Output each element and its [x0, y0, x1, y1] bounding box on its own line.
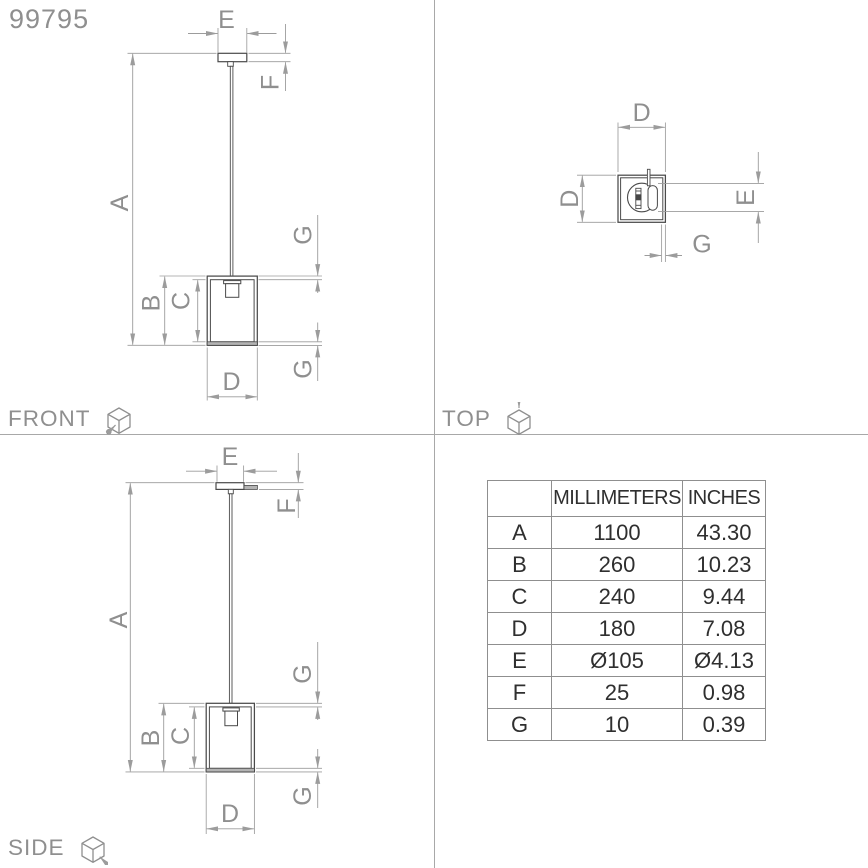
front-view-label-text: FRONT	[8, 406, 91, 432]
dim-inches: 0.98	[683, 677, 766, 709]
side-dim-label-g-top: G	[289, 664, 317, 683]
dim-mm: 180	[552, 613, 683, 645]
side-view-cube-icon	[78, 831, 108, 865]
side-dim-label-e: E	[222, 443, 239, 471]
dim-key: D	[488, 613, 552, 645]
side-dim-g-top: G	[256, 642, 322, 720]
dim-key: B	[488, 549, 552, 581]
front-dim-label-f: F	[257, 75, 285, 90]
top-dim-label-d-top: D	[633, 99, 651, 127]
side-dim-a: A	[105, 483, 215, 772]
dim-key: G	[488, 709, 552, 741]
top-dim-d-left: D	[556, 175, 616, 222]
dim-mm: 240	[552, 581, 683, 613]
table-row: B 260 10.23	[488, 549, 766, 581]
table-row: F 25 0.98	[488, 677, 766, 709]
top-dim-label-d-left: D	[556, 190, 584, 208]
top-dim-label-g: G	[692, 231, 711, 259]
dimensions-table: MILLIMETERS INCHES A 1100 43.30 B 260 10…	[487, 480, 766, 741]
table-row: C 240 9.44	[488, 581, 766, 613]
dim-mm: 260	[552, 549, 683, 581]
dim-mm: 25	[552, 677, 683, 709]
dim-inches: 7.08	[683, 613, 766, 645]
side-view-label: SIDE	[8, 831, 108, 865]
side-lamp-object	[206, 483, 257, 772]
side-dim-label-f: F	[273, 498, 301, 513]
front-canopy	[218, 53, 247, 61]
front-dim-label-g-bottom: G	[290, 359, 318, 378]
front-shade-bottom-bar	[207, 342, 257, 346]
front-dim-label-g-top: G	[290, 225, 318, 244]
top-dim-label-e: E	[732, 189, 760, 206]
top-bracket-pill	[648, 186, 657, 211]
top-view-label: TOP	[442, 402, 534, 436]
front-dim-g-top: G	[259, 215, 323, 293]
side-dim-d: D	[206, 774, 254, 834]
top-view-label-text: TOP	[442, 406, 491, 432]
table-row: A 1100 43.30	[488, 517, 766, 549]
dim-inches: 10.23	[683, 549, 766, 581]
top-dim-d-top: D	[618, 99, 665, 172]
side-dim-g-bottom: G	[256, 749, 322, 808]
top-dim-e: E	[658, 152, 764, 243]
side-dim-label-c: C	[167, 727, 195, 745]
top-dim-g: G	[645, 225, 712, 263]
dim-mm: 1100	[552, 517, 683, 549]
dim-inches: 0.39	[683, 709, 766, 741]
table-header-millimeters: MILLIMETERS	[552, 481, 683, 517]
dim-key: E	[488, 645, 552, 677]
front-dim-e: E	[188, 6, 277, 53]
dim-mm: Ø105	[552, 645, 683, 677]
table-row: E Ø105 Ø4.13	[488, 645, 766, 677]
front-canopy-nub	[228, 62, 234, 67]
front-dim-f: F	[249, 24, 291, 91]
front-view-label: FRONT	[8, 402, 134, 436]
side-view-label-text: SIDE	[8, 835, 65, 861]
dim-inches: Ø4.13	[683, 645, 766, 677]
front-lamp-object	[207, 53, 257, 345]
side-dim-label-d: D	[221, 800, 239, 828]
table-header-inches: INCHES	[683, 481, 766, 517]
side-canopy-tab	[244, 485, 257, 489]
table-row: G 10 0.39	[488, 709, 766, 741]
top-bracket-block	[635, 194, 641, 200]
side-view-drawing: E F A B	[0, 434, 434, 868]
side-dim-label-a: A	[105, 611, 133, 628]
front-dim-label-c: C	[168, 292, 196, 310]
dim-mm: 10	[552, 709, 683, 741]
side-canopy-nub	[228, 489, 233, 493]
table-header-row: MILLIMETERS INCHES	[488, 481, 766, 517]
dim-key: F	[488, 677, 552, 709]
front-dim-label-d: D	[222, 368, 240, 396]
side-canopy	[216, 483, 244, 490]
dim-key: C	[488, 581, 552, 613]
side-socket	[225, 711, 238, 726]
side-dim-label-g-bottom: G	[289, 786, 317, 805]
dim-inches: 43.30	[683, 517, 766, 549]
table-row: D 180 7.08	[488, 613, 766, 645]
front-dim-g-bottom: G	[259, 323, 323, 382]
front-dim-d: D	[207, 348, 257, 401]
dimension-datasheet: 99795 E F A B	[0, 0, 868, 868]
front-socket	[226, 284, 239, 298]
table-header-blank	[488, 481, 552, 517]
top-lamp-object	[618, 169, 665, 222]
front-dim-label-a: A	[106, 194, 134, 211]
top-view-cube-icon	[504, 402, 534, 436]
side-dim-e: E	[186, 443, 277, 482]
dim-key: A	[488, 517, 552, 549]
side-dim-c: C	[167, 707, 205, 768]
front-view-cube-icon	[104, 402, 134, 436]
front-dim-label-b: B	[138, 295, 166, 312]
top-cable-stub	[647, 169, 650, 186]
front-view-drawing: E F A B	[0, 0, 434, 434]
dim-inches: 9.44	[683, 581, 766, 613]
front-cable	[230, 66, 233, 276]
front-dim-label-e: E	[218, 6, 235, 34]
front-dim-c: C	[168, 280, 206, 342]
side-cable	[229, 494, 232, 704]
side-dim-label-b: B	[137, 730, 165, 747]
side-shade-bottom-bar	[206, 768, 254, 772]
top-view-drawing: D D E G	[434, 0, 868, 434]
